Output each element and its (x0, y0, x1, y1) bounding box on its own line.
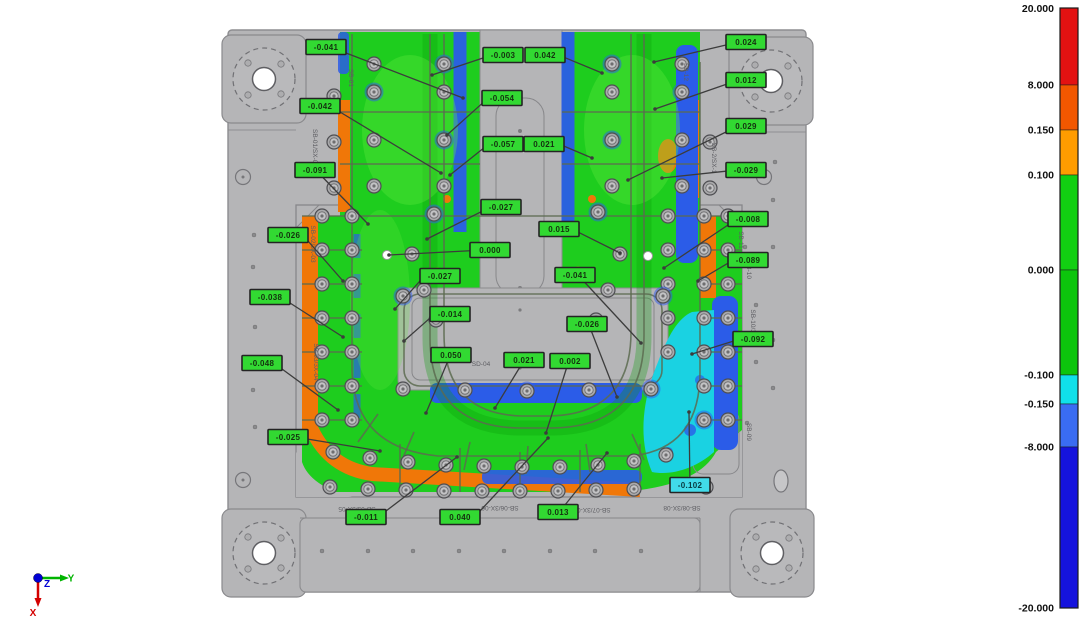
deviation-value: -0.057 (491, 140, 516, 149)
screw-head (601, 283, 615, 297)
screw-head (437, 179, 451, 193)
deviation-value: 0.021 (533, 140, 555, 149)
screw-head (675, 179, 689, 193)
screw-head (659, 448, 673, 462)
small-hole (253, 425, 257, 429)
deviation-value: 0.042 (534, 51, 556, 60)
small-hole (771, 386, 775, 390)
colorbar-tick-label: 20.000 (1022, 3, 1054, 15)
deviation-label[interactable]: -0.057 (483, 137, 523, 152)
leader-anchor (493, 406, 497, 410)
leader-anchor (653, 107, 657, 111)
screw-head (323, 480, 337, 494)
deviation-label[interactable]: -0.003 (483, 48, 523, 63)
leader-anchor (615, 395, 619, 399)
y-axis-label: Y (68, 574, 75, 585)
deviation-value: -0.029 (734, 166, 759, 175)
small-hole (773, 160, 777, 164)
reference-point[interactable] (644, 252, 653, 261)
deviation-label[interactable]: -0.091 (295, 163, 335, 178)
small-hole (251, 265, 255, 269)
deviation-value: -0.102 (678, 481, 703, 490)
bottom-bar (300, 518, 700, 592)
screw-head (703, 181, 717, 195)
leader-anchor (430, 73, 434, 77)
screw-head (345, 243, 359, 257)
deviation-label[interactable]: 0.002 (550, 354, 590, 369)
deviation-value: 0.050 (440, 351, 462, 360)
screw-head (345, 277, 359, 291)
leader-anchor (448, 173, 452, 177)
oval-hole (774, 470, 788, 492)
deviation-value: -0.014 (438, 310, 463, 319)
leader-anchor (660, 176, 664, 180)
colorbar-tick-label: -0.150 (1024, 399, 1054, 411)
screw-head (437, 484, 451, 498)
x-axis-arrowhead (35, 598, 42, 607)
deviation-value: -0.041 (563, 271, 588, 280)
part-zone-text: SB-06/3X-06 (481, 504, 519, 511)
screw-head (697, 209, 711, 223)
leader-anchor (461, 96, 465, 100)
screw-head (721, 277, 735, 291)
deviation-value: -0.038 (258, 293, 283, 302)
leader-anchor (393, 307, 397, 311)
leader-anchor (618, 251, 622, 255)
part-zone-text: SD-04 (472, 361, 491, 368)
screw-head (475, 484, 489, 498)
small-hole (366, 549, 370, 553)
screw-head (425, 205, 444, 224)
colorbar-tick-label: 8.000 (1028, 80, 1054, 92)
small-hole (639, 549, 643, 553)
screw-head (345, 311, 359, 325)
screw-head (399, 483, 413, 497)
screw-head (315, 277, 329, 291)
leader-anchor (445, 133, 449, 137)
colorbar-tick-label: -20.000 (1018, 603, 1054, 615)
leader-anchor (341, 335, 345, 339)
small-hole (457, 549, 461, 553)
deviation-label[interactable]: -0.011 (346, 510, 386, 525)
colorbar-tick-label: 0.000 (1028, 265, 1054, 277)
leader-anchor (424, 411, 428, 415)
screw-head (661, 311, 675, 325)
small-hole (253, 325, 257, 329)
leader-anchor (425, 237, 429, 241)
deviation-label[interactable]: -0.089 (728, 253, 768, 268)
z-axis-label: Z (44, 579, 50, 590)
screw-head (513, 484, 527, 498)
screw-head (721, 379, 735, 393)
screw-head (396, 382, 410, 396)
deviation-value: -0.048 (250, 359, 275, 368)
part-zone-text: SB-09 (745, 423, 752, 441)
screw-head (327, 135, 341, 149)
part-zone-text: SB-2/SX-1 (710, 143, 717, 174)
deviation-label[interactable]: -0.008 (728, 212, 768, 227)
colorbar-tick-label: 0.150 (1028, 125, 1054, 137)
leader-anchor (366, 222, 370, 226)
leader-line (689, 412, 690, 478)
screw-head (695, 411, 714, 430)
deviation-label[interactable]: -0.027 (420, 269, 460, 284)
small-hole (754, 303, 758, 307)
leader-anchor (544, 431, 548, 435)
deviation-value: 0.000 (479, 246, 501, 255)
leader-anchor (652, 60, 656, 64)
deviation-value: -0.091 (303, 166, 328, 175)
leader-anchor (439, 171, 443, 175)
deviation-label[interactable]: 0.029 (726, 119, 766, 134)
deviation-label[interactable]: -0.029 (726, 163, 766, 178)
leader-anchor (590, 156, 594, 160)
colorbar-tick-label: -8.000 (1024, 442, 1054, 454)
colorbar-segment (1060, 375, 1078, 404)
screw-head (315, 243, 329, 257)
leader-anchor (341, 279, 345, 283)
screw-head (603, 55, 622, 74)
small-hole (411, 549, 415, 553)
screw-head (589, 203, 608, 222)
screw-head (553, 460, 567, 474)
screw-head (477, 459, 491, 473)
screw-head (394, 287, 413, 306)
edge-hole (236, 170, 251, 185)
screw-head (361, 482, 375, 496)
deviation-value: -0.089 (736, 256, 761, 265)
deviation-value: -0.025 (276, 433, 301, 442)
screw-head (605, 179, 619, 193)
screw-head (721, 311, 735, 325)
colorbar-tick-label: -0.100 (1024, 370, 1054, 382)
screw-head (642, 380, 661, 399)
z-axis-dot (34, 574, 43, 583)
screw-head (721, 413, 735, 427)
small-hole (252, 233, 256, 237)
screw-head (697, 379, 711, 393)
screw-head (661, 209, 675, 223)
screw-head (721, 345, 735, 359)
deviation-value: -0.008 (736, 215, 761, 224)
deviation-label[interactable]: -0.102 (670, 478, 710, 493)
deviation-label[interactable]: 0.021 (504, 353, 544, 368)
small-hole (548, 549, 552, 553)
screw-head (345, 209, 359, 223)
deviation-label[interactable]: -0.026 (268, 228, 308, 243)
deviation-value: 0.002 (559, 357, 581, 366)
small-hole (771, 198, 775, 202)
leader-anchor (600, 71, 604, 75)
leader-anchor (696, 279, 700, 283)
part-zone-text: SB-11 (737, 231, 744, 249)
deviation-analysis-canvas: SB-01SB-01/SX-02SB-12SB-2/SX-1SB-02/3X-0… (0, 0, 1080, 618)
deviation-value: -0.003 (491, 51, 516, 60)
screw-head (417, 283, 431, 297)
small-hole (320, 549, 324, 553)
deviation-label[interactable]: 0.024 (726, 35, 766, 50)
screw-head (675, 133, 689, 147)
screw-head (661, 345, 675, 359)
deviation-value: -0.092 (741, 335, 766, 344)
leader-anchor (336, 408, 340, 412)
edge-hole (236, 473, 251, 488)
deviation-label[interactable]: 0.021 (524, 137, 564, 152)
screw-head (603, 131, 622, 150)
deviation-value: -0.011 (354, 513, 378, 522)
deviation-value: 0.021 (513, 356, 535, 365)
deviation-label[interactable]: -0.041 (555, 268, 595, 283)
screw-head (345, 345, 359, 359)
deviation-value: 0.029 (735, 122, 757, 131)
deviation-value: 0.024 (735, 38, 757, 47)
part-zone-text: SB-03/3X-04 (312, 343, 319, 381)
deviation-value: -0.026 (575, 320, 600, 329)
small-hole (502, 549, 506, 553)
small-hole (771, 245, 775, 249)
deviation-label[interactable]: 0.000 (470, 243, 510, 258)
screw-head (326, 445, 340, 459)
axis-triad[interactable]: YXZ (30, 574, 75, 618)
deviation-value: -0.041 (314, 43, 339, 52)
screw-head (435, 131, 454, 150)
deviation-label[interactable]: 0.012 (726, 73, 766, 88)
screw-head (654, 287, 673, 306)
deviation-label[interactable]: -0.041 (306, 40, 346, 55)
part-zone-text: SB-01/SX-02 (311, 129, 318, 167)
deviation-value: -0.042 (308, 102, 333, 111)
screw-head (697, 311, 711, 325)
deviation-label[interactable]: 0.042 (525, 48, 565, 63)
color-scale[interactable]: 20.0008.0000.1500.1000.000-0.100-0.150-8… (1018, 3, 1078, 615)
deviation-label[interactable]: 0.015 (539, 222, 579, 237)
deviation-value: 0.013 (547, 508, 569, 517)
leader-anchor (546, 436, 550, 440)
colorbar-segment (1060, 130, 1078, 175)
part-zone-text: SB-12 (682, 63, 689, 81)
deviation-label[interactable]: -0.014 (430, 307, 470, 322)
deviation-label[interactable]: -0.025 (268, 430, 308, 445)
colorbar-segment (1060, 175, 1078, 270)
colorbar-segment (1060, 8, 1078, 85)
deviation-label[interactable]: -0.048 (242, 356, 282, 371)
screw-head (315, 413, 329, 427)
screw-head (518, 382, 537, 401)
deviation-label[interactable]: 0.040 (440, 510, 480, 525)
deviation-label[interactable]: -0.038 (250, 290, 290, 305)
small-hole (251, 388, 255, 392)
deviation-label[interactable]: -0.026 (567, 317, 607, 332)
leader-anchor (626, 178, 630, 182)
screw-head (345, 379, 359, 393)
screw-head (605, 85, 619, 99)
screw-head (589, 483, 603, 497)
deviation-label[interactable]: -0.054 (482, 91, 522, 106)
inspection-viewport: SB-01SB-01/SX-02SB-12SB-2/SX-1SB-02/3X-0… (0, 0, 1080, 618)
deviation-value: -0.054 (490, 94, 515, 103)
screw-head (661, 243, 675, 257)
colorbar-segment (1060, 447, 1078, 608)
x-axis-label: X (30, 608, 37, 618)
leader-anchor (387, 253, 391, 257)
screw-head (345, 413, 359, 427)
leader-anchor (402, 339, 406, 343)
deviation-value: 0.015 (548, 225, 570, 234)
screw-head (627, 482, 641, 496)
leader-anchor (605, 451, 609, 455)
screw-head (401, 455, 415, 469)
deviation-value: 0.040 (449, 513, 471, 522)
screw-head (697, 277, 711, 291)
part-zone-text: SB-01 (347, 69, 354, 87)
deviation-value: -0.027 (428, 272, 453, 281)
colorbar-tick-label: 0.100 (1028, 170, 1054, 182)
screw-head (627, 454, 641, 468)
screw-head (363, 451, 377, 465)
leader-anchor (662, 266, 666, 270)
deviation-value: -0.027 (489, 203, 514, 212)
leader-anchor (378, 449, 382, 453)
small-hole (593, 549, 597, 553)
screw-head (315, 209, 329, 223)
screw-head (582, 383, 596, 397)
leader-anchor (687, 410, 691, 414)
deviation-label[interactable]: 0.013 (538, 505, 578, 520)
colorbar-segment (1060, 404, 1078, 447)
screw-head (315, 379, 329, 393)
deviation-label[interactable]: -0.027 (481, 200, 521, 215)
deviation-label[interactable]: -0.092 (733, 332, 773, 347)
leader-anchor (639, 341, 643, 345)
deviation-value: 0.012 (735, 76, 757, 85)
screw-head (458, 383, 472, 397)
deviation-label[interactable]: 0.050 (431, 348, 471, 363)
deviation-label[interactable]: -0.042 (300, 99, 340, 114)
screw-head (365, 83, 384, 102)
leader-anchor (455, 455, 459, 459)
colorbar-segment (1060, 85, 1078, 130)
part-zone-text: SB-08/3X-08 (663, 504, 701, 511)
screw-head (551, 484, 565, 498)
screw-head (673, 83, 692, 102)
deviation-value: -0.026 (276, 231, 301, 240)
small-hole (754, 360, 758, 364)
colorbar-segment (1060, 270, 1078, 375)
leader-anchor (690, 352, 694, 356)
screw-head (367, 179, 381, 193)
